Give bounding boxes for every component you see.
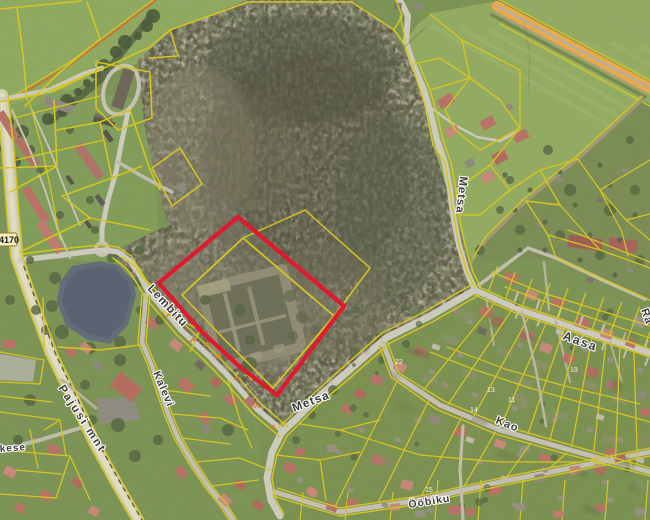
svg-text:15: 15 [425, 487, 433, 494]
svg-text:4170: 4170 [0, 235, 19, 245]
svg-text:11: 11 [508, 397, 515, 404]
svg-text:14: 14 [470, 407, 478, 414]
svg-text:22: 22 [395, 359, 403, 366]
svg-text:kese: kese [0, 442, 26, 455]
svg-text:13: 13 [487, 387, 495, 394]
svg-text:19: 19 [570, 367, 578, 374]
svg-text:5: 5 [497, 423, 501, 430]
